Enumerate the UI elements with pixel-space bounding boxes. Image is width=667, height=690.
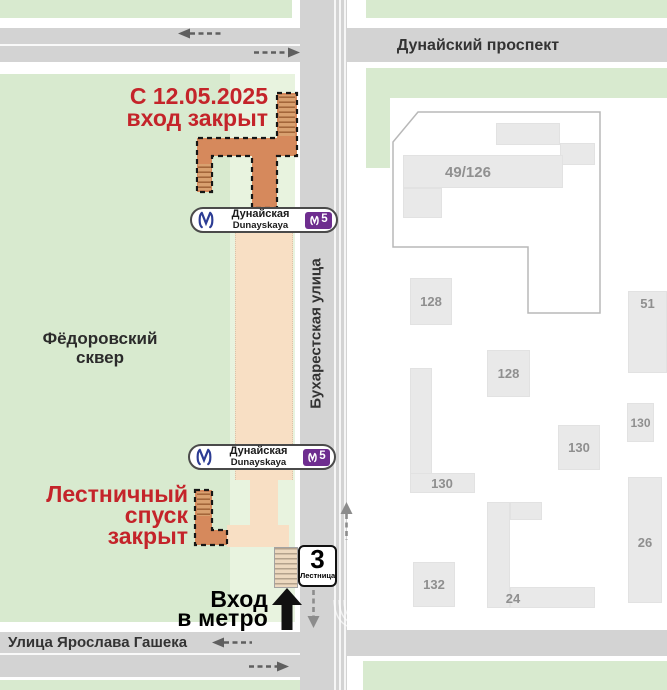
building-label-51: 51	[628, 293, 667, 313]
notice-line: С 12.05.2025	[18, 85, 268, 107]
closed-corridor-bottom	[193, 488, 231, 550]
notice-line: вход закрыт	[18, 107, 268, 129]
spb-metro-logo-icon	[194, 447, 214, 467]
station-name: Дунайская Dunayskaya	[219, 209, 302, 231]
street-label-gasheka: Улица Ярослава Гашека	[8, 634, 218, 651]
green-strip-right	[366, 68, 667, 98]
lane-line	[339, 0, 341, 690]
green-strip-bottom-left	[0, 680, 300, 690]
station-badge-dunayskaya-south: Дунайская Dunayskaya 5	[188, 444, 336, 470]
street-divider-bottom	[0, 653, 300, 655]
stairs-number: 3	[300, 547, 335, 572]
notice-line: закрыт	[8, 526, 188, 547]
building-49-126-part	[496, 123, 560, 145]
traffic-arrow-up-icon	[340, 502, 353, 540]
metro-corridor-open	[235, 207, 293, 480]
street-label-dunaysky: Дунайский проспект	[358, 37, 598, 55]
notice-stairs-closed: Лестничный спуск закрыт	[8, 484, 188, 547]
metro-corridor-open	[227, 525, 289, 547]
stairs-caption: Лестница	[300, 572, 335, 580]
entrance-arrow-up-icon	[272, 588, 302, 630]
notice-entrance-closed: С 12.05.2025 вход закрыт	[18, 85, 268, 129]
street-divider-top	[0, 44, 300, 46]
building-130a-part	[410, 368, 432, 475]
lane-line	[344, 0, 346, 690]
traffic-arrow-down-icon	[307, 590, 320, 628]
station-name-en: Dunayskaya	[217, 458, 300, 468]
metro-logo-mini-icon	[309, 215, 320, 226]
stairs-3-badge: 3 Лестница	[298, 545, 337, 587]
building-49-126-part	[403, 188, 442, 218]
station-badge-dunayskaya-north: Дунайская Dunayskaya 5	[190, 207, 338, 233]
closed-stairs-icon	[198, 164, 211, 190]
metro-logo-mini-icon	[307, 452, 318, 463]
building-label-130a: 130	[418, 473, 466, 493]
closed-stairs-icon	[197, 492, 210, 516]
traffic-arrow-right-icon	[249, 661, 289, 672]
metro-corridor-open	[250, 478, 278, 528]
building-label-128b: 128	[487, 363, 530, 383]
building-label-26: 26	[628, 532, 662, 552]
entrance-line: в метро	[118, 609, 268, 628]
green-strip-bottom-right	[363, 661, 667, 690]
park-label: Фёдоровский сквер	[25, 329, 175, 367]
park-label-line: Фёдоровский	[25, 329, 175, 348]
closed-stairs-icon	[279, 95, 295, 136]
lane-line	[334, 0, 336, 690]
station-name-ru: Дунайская	[217, 446, 300, 457]
park-label-line: сквер	[25, 348, 175, 367]
green-strip-top-left	[0, 0, 292, 18]
building-label-49-126: 49/126	[403, 162, 533, 182]
station-name: Дунайская Dunayskaya	[217, 446, 300, 468]
line-number: 5	[319, 451, 325, 463]
station-name-ru: Дунайская	[219, 209, 302, 220]
traffic-arrow-left-icon	[178, 28, 224, 39]
building-label-132: 132	[413, 574, 455, 594]
line-number: 5	[321, 214, 327, 226]
line-5-badge: 5	[303, 449, 330, 466]
street-label-bukharestskaya: Бухарестская улица	[308, 234, 325, 434]
building-49-126-part	[560, 143, 595, 165]
building-label-130c: 130	[627, 413, 654, 433]
building-label-128a: 128	[410, 291, 452, 311]
building-label-130b: 130	[558, 437, 600, 457]
spb-metro-logo-icon	[196, 210, 216, 230]
staircase-3-icon	[274, 547, 298, 588]
line-5-badge: 5	[305, 212, 332, 229]
metro-entrance-label: Вход в метро	[118, 590, 268, 627]
map-canvas: 49/126 128 51 128 130 130 130 26 132 24	[0, 0, 667, 690]
green-strip-top-right	[366, 0, 667, 18]
traffic-arrow-right-icon	[254, 47, 300, 58]
traffic-arrow-left-icon	[212, 637, 252, 648]
building-label-24: 24	[487, 588, 539, 608]
building-24-part	[510, 502, 542, 520]
station-name-en: Dunayskaya	[219, 221, 302, 231]
green-strip-right-edge	[366, 98, 390, 168]
